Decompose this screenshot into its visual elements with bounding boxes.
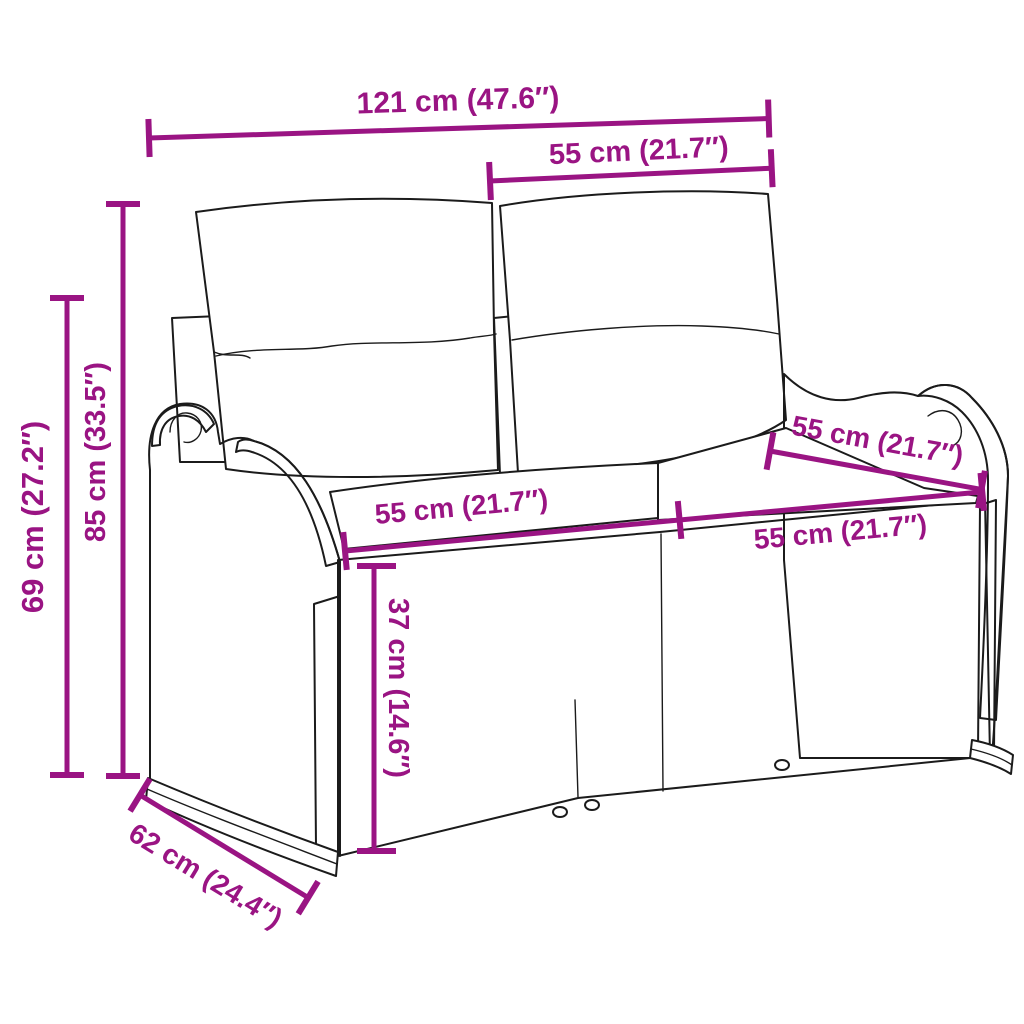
dim-seat-height: 37 cm (14.6″)	[357, 566, 414, 851]
dim-label-back-height: 85 cm (33.5″)	[80, 362, 112, 542]
dim-label-seat-height: 37 cm (14.6″)	[382, 598, 414, 778]
dimension-diagram: 121 cm (47.6″) 55 cm (21.7″) 85 cm (33.5…	[0, 0, 1024, 1024]
back-cushion-right	[500, 191, 786, 473]
dim-arm-height: 69 cm (27.2″)	[15, 298, 84, 775]
dim-label-arm-height: 69 cm (27.2″)	[15, 421, 50, 613]
dim-back-height: 85 cm (33.5″)	[80, 204, 140, 776]
base-rails-right	[970, 740, 1013, 774]
dim-label-total-width: 121 cm (47.6″)	[356, 81, 560, 120]
dim-back-half-width: 55 cm (21.7″)	[488, 129, 772, 200]
bench-base	[338, 500, 990, 856]
bench-diagram-svg: 121 cm (47.6″) 55 cm (21.7″) 85 cm (33.5…	[0, 0, 1024, 1024]
corner-post-left	[314, 596, 340, 854]
dim-label-seat-width-right: 55 cm (21.7″)	[752, 508, 928, 555]
dim-total-depth: 62 cm (24.4″)	[114, 779, 318, 941]
dim-label-back-half-width: 55 cm (21.7″)	[548, 131, 729, 171]
back-cushion-left	[196, 199, 498, 477]
